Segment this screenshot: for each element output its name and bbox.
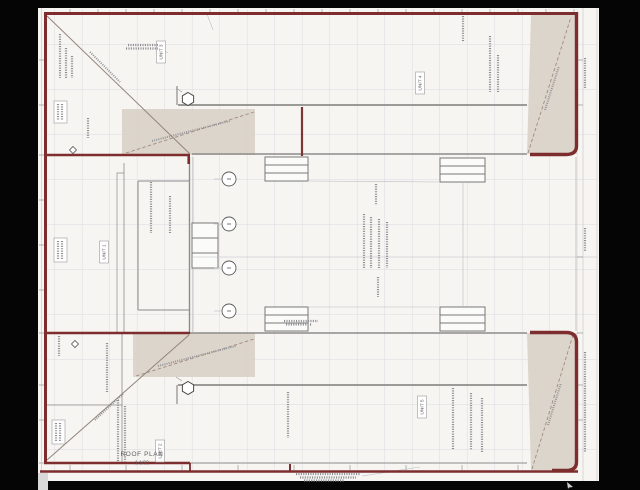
cursor bbox=[567, 482, 573, 489]
screenshot-canvas: UNIT 3 UNIT 4 UNIT 1 UNIT 5 UNIT 2 bbox=[0, 0, 640, 490]
unit-5-label: UNIT 5 bbox=[419, 399, 425, 414]
roof-plan-drawing: UNIT 3 UNIT 4 UNIT 1 UNIT 5 UNIT 2 bbox=[0, 0, 640, 490]
unit-4-label: UNIT 4 bbox=[417, 75, 423, 90]
unit-3-label: UNIT 3 bbox=[158, 44, 164, 59]
grid-lines bbox=[44, 9, 597, 471]
unit-1-label: UNIT 1 bbox=[101, 244, 107, 259]
drawing-title: ROOF PLAN bbox=[121, 451, 164, 458]
drawing-scale: 1 1/32 bbox=[135, 461, 149, 467]
page-corner-artifact bbox=[38, 473, 48, 490]
